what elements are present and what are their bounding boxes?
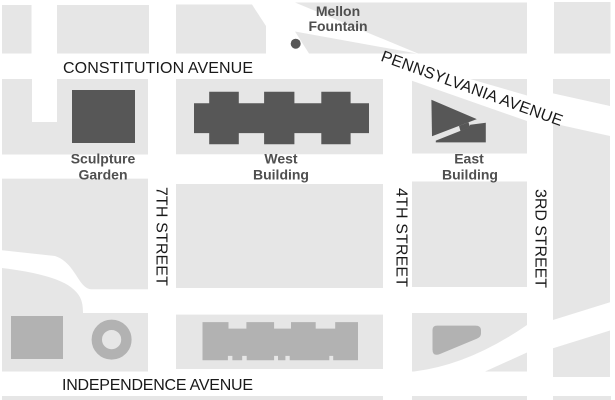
- svg-text:East: East: [454, 151, 484, 167]
- svg-text:West: West: [264, 151, 298, 167]
- svg-text:Mellon: Mellon: [316, 3, 360, 19]
- svg-text:Fountain: Fountain: [308, 18, 367, 34]
- svg-text:Sculpture: Sculpture: [71, 151, 136, 167]
- svg-text:CONSTITUTION AVENUE: CONSTITUTION AVENUE: [63, 60, 253, 77]
- svg-text:Garden: Garden: [78, 167, 127, 183]
- svg-text:3RD STREET: 3RD STREET: [532, 189, 549, 288]
- svg-text:INDEPENDENCE AVENUE: INDEPENDENCE AVENUE: [62, 377, 253, 394]
- svg-text:Building: Building: [253, 167, 309, 183]
- svg-text:4TH STREET: 4TH STREET: [393, 188, 410, 287]
- svg-text:7TH STREET: 7TH STREET: [153, 187, 170, 286]
- svg-text:Building: Building: [442, 167, 498, 183]
